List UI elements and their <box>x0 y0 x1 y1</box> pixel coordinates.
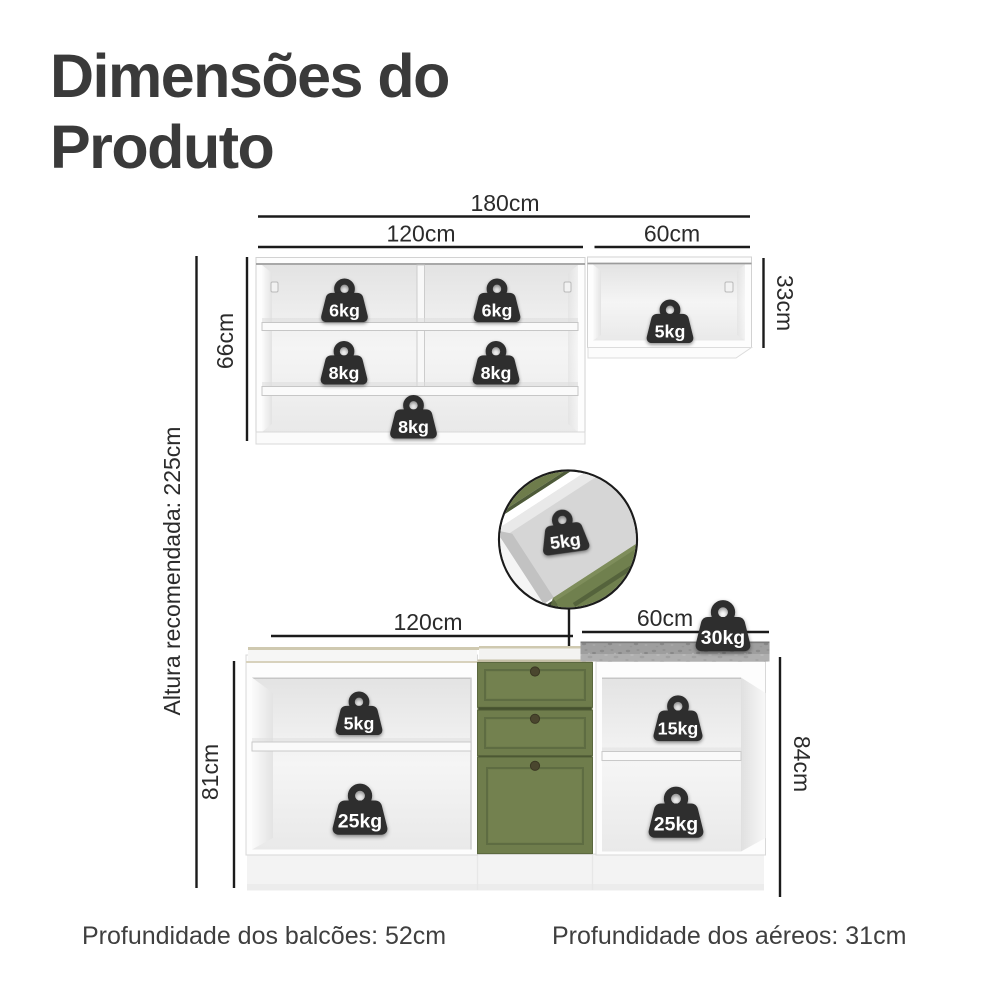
svg-text:66cm: 66cm <box>212 313 238 369</box>
svg-text:Altura recomendada: 225cm: Altura recomendada: 225cm <box>159 427 185 716</box>
svg-text:120cm: 120cm <box>393 609 462 635</box>
svg-text:25kg: 25kg <box>338 811 382 833</box>
svg-text:8kg: 8kg <box>398 417 429 437</box>
svg-text:180cm: 180cm <box>470 190 539 216</box>
svg-text:120cm: 120cm <box>386 221 455 247</box>
svg-text:81cm: 81cm <box>197 744 223 800</box>
svg-text:5kg: 5kg <box>655 321 686 341</box>
svg-text:8kg: 8kg <box>481 363 512 383</box>
svg-text:25kg: 25kg <box>654 814 698 836</box>
svg-text:60cm: 60cm <box>637 605 693 631</box>
svg-text:Dimensões do: Dimensões do <box>50 42 449 110</box>
svg-text:60cm: 60cm <box>644 221 700 247</box>
svg-text:84cm: 84cm <box>789 736 815 792</box>
svg-text:Produto: Produto <box>50 113 273 181</box>
svg-text:Profundidade dos balcões: 52cm: Profundidade dos balcões: 52cm <box>82 922 446 950</box>
svg-text:30kg: 30kg <box>701 627 745 649</box>
svg-text:5kg: 5kg <box>549 529 582 553</box>
svg-text:6kg: 6kg <box>329 300 360 320</box>
svg-text:6kg: 6kg <box>482 300 513 320</box>
svg-text:15kg: 15kg <box>658 719 699 739</box>
svg-text:8kg: 8kg <box>329 363 360 383</box>
svg-text:33cm: 33cm <box>772 275 798 331</box>
svg-text:5kg: 5kg <box>344 713 375 733</box>
svg-text:Profundidade dos aéreos: 31cm: Profundidade dos aéreos: 31cm <box>552 922 906 950</box>
